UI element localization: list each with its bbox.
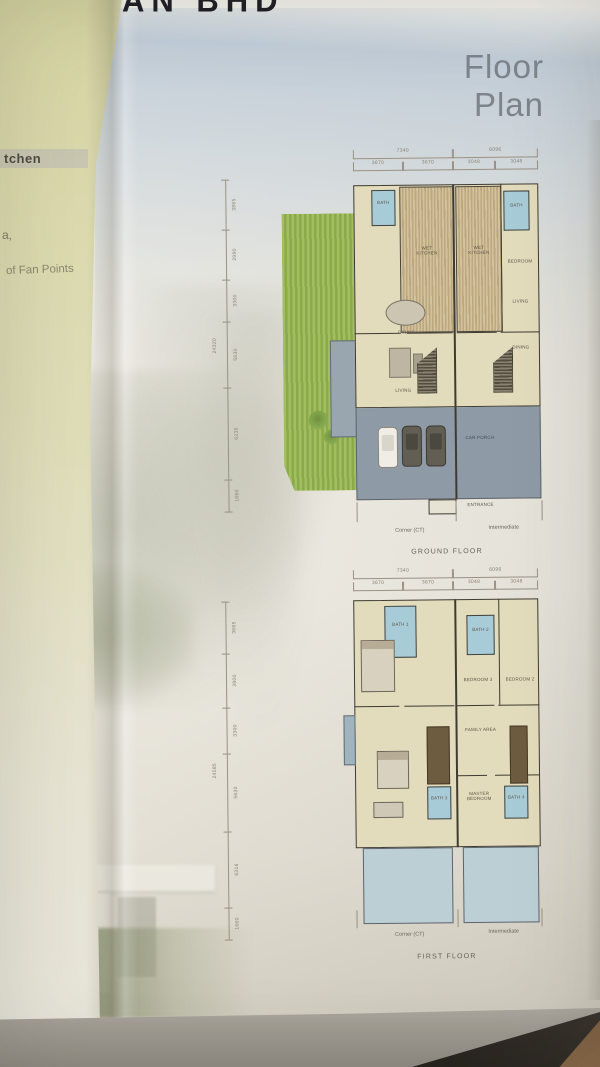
footer-tick: [457, 909, 458, 927]
room-label: CAR PORCH: [458, 435, 502, 441]
side-yard: [330, 340, 358, 437]
car-icon: [402, 426, 422, 467]
dim-label: 3665: [231, 612, 237, 642]
room-label: BEDROOM: [502, 258, 538, 264]
room-label: BATH: [371, 200, 395, 205]
unit-type-label: Corner (CT): [375, 527, 445, 534]
dim-line: 3670: [403, 581, 453, 591]
bed: [361, 640, 396, 692]
dim-tick: [223, 322, 231, 323]
bathroom-3: [427, 786, 451, 819]
room-label: BATH: [503, 202, 529, 207]
brochure-photo: tchen a, of Fan Points AN BHD Floor Plan…: [0, 0, 600, 1067]
dim-label: 3300: [232, 285, 238, 315]
left-page-text-fragment: a,: [2, 228, 12, 242]
car-icon: [426, 425, 446, 466]
tree-icon: [309, 411, 329, 431]
dim-line: 3048: [495, 580, 538, 589]
room-label: FAMILY AREA: [460, 727, 502, 733]
dim-label: 6235: [234, 418, 240, 448]
dim-label: 3900: [232, 665, 238, 695]
footer-tick: [357, 502, 358, 522]
room-label: DINING: [501, 344, 541, 350]
dim-label: 3865: [231, 189, 237, 219]
dim-line: 7340: [353, 569, 453, 579]
footer-tick: [541, 908, 542, 926]
dim-tick: [222, 280, 230, 281]
balcony: [463, 846, 540, 923]
dim-line: 3670: [353, 582, 403, 592]
dim-label: 2990: [232, 239, 238, 269]
dim-tick: [224, 480, 232, 481]
room-label: BATH 2: [466, 627, 494, 632]
dim-label: 3300: [232, 715, 238, 745]
dim-label: 5630: [233, 777, 239, 807]
dim-tick: [221, 180, 229, 181]
room-label: BATH 3: [427, 795, 451, 800]
bathroom: [503, 190, 529, 230]
wet-kitchen-right: [455, 186, 503, 332]
room-label: WET KITCHEN: [464, 245, 494, 256]
dim-tick: [222, 708, 230, 709]
dim-tick: [221, 602, 229, 603]
dim-line: 6096: [453, 148, 538, 158]
left-page-text-fragment: of Fan Points: [6, 263, 74, 277]
dim-line: 3670: [353, 162, 403, 172]
room-label: LIVING: [383, 388, 423, 394]
dim-line: 6096: [453, 568, 538, 578]
room-label: BEDROOM 3: [458, 677, 498, 683]
dim-tick: [224, 908, 232, 909]
dim-label: 24320: [212, 331, 218, 361]
room-label: MASTER BEDROOM: [464, 791, 494, 802]
side-ledge: [343, 715, 356, 765]
bed: [373, 802, 403, 818]
room-label: BEDROOM 2: [500, 676, 540, 682]
dim-tick: [225, 940, 233, 941]
floor-caption: GROUND FLOOR: [382, 548, 512, 556]
dim-tick: [224, 832, 232, 833]
footer-tick: [356, 910, 357, 928]
sofa: [389, 348, 411, 378]
page-title: Floor Plan: [464, 48, 544, 124]
dim-label: 6316: [234, 854, 240, 884]
dim-label: 5630: [233, 339, 239, 369]
dim-tick: [223, 754, 231, 755]
wardrobe: [427, 726, 451, 784]
dim-line: [225, 602, 229, 940]
dim-line: 3048: [453, 161, 495, 170]
page-title-line1: Floor: [464, 48, 544, 86]
dim-label: 1660: [234, 908, 240, 938]
room-label: LIVING: [500, 298, 540, 304]
dim-label: 1660: [234, 480, 240, 510]
dim-line: 3048: [453, 581, 495, 590]
wardrobe: [510, 725, 529, 783]
bathroom: [371, 190, 395, 226]
unit-type-label: Corner (CT): [375, 931, 445, 938]
bed: [377, 751, 409, 789]
bathroom-4: [504, 785, 528, 818]
room-label: ENTRANCE: [459, 502, 503, 508]
room-label: BATH 4: [504, 794, 528, 799]
dim-tick: [225, 512, 233, 513]
left-page-text-fragment: tchen: [4, 151, 41, 166]
dim-line: 7340: [353, 149, 453, 159]
dim-label: 24585: [212, 756, 218, 786]
entrance-porch: [428, 499, 456, 514]
bathroom-2: [466, 615, 494, 655]
brand-text-fragment: AN BHD: [122, 0, 285, 20]
unit-type-label: Intermediate: [469, 928, 539, 935]
ground-floor-plan: 7340 6096 3670 3670 3048 3048 24320 3865…: [203, 146, 557, 570]
footer-tick: [541, 500, 542, 520]
room-label: DINING: [387, 330, 427, 336]
dim-tick: [222, 654, 230, 655]
floor-caption: FIRST FLOOR: [382, 953, 512, 961]
first-floor-plan: 7340 6096 3670 3670 3048 3048 24585 3665…: [203, 564, 557, 980]
room-label: WET KITCHEN: [412, 245, 442, 256]
unit-type-label: Intermediate: [469, 524, 539, 531]
page-title-line2: Plan: [464, 86, 544, 124]
dim-tick: [223, 388, 231, 389]
page-right-edge: [586, 120, 600, 1000]
dim-line: 3048: [495, 160, 538, 169]
room-label: BATH 1: [384, 622, 416, 628]
balcony: [363, 847, 454, 924]
car-icon: [378, 427, 398, 468]
dim-line: 3670: [403, 161, 453, 171]
dim-tick: [222, 230, 230, 231]
